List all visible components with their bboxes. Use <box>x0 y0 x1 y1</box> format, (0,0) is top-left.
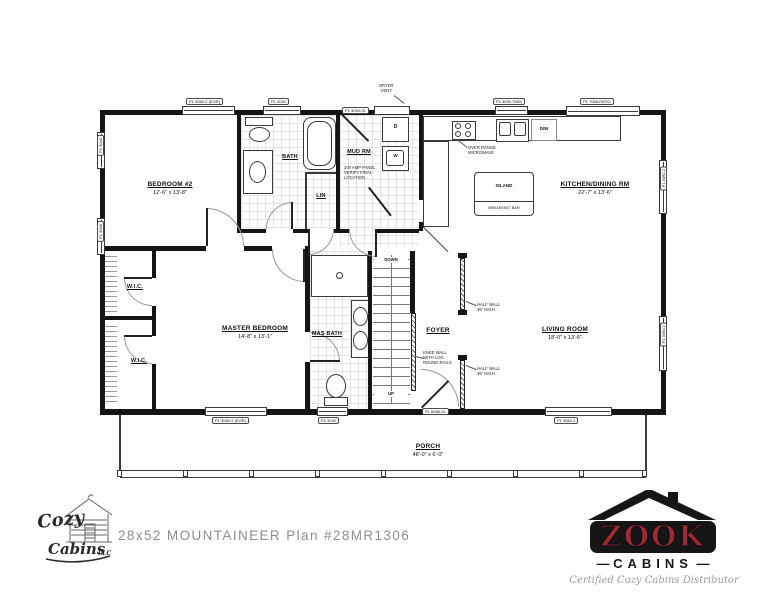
mudroom-door <box>374 106 410 115</box>
vanity-sink <box>353 331 368 350</box>
breakfast-bar-label: BREAKFAST BAR <box>474 205 534 211</box>
window-spec: P1 3030 TWIN <box>493 98 525 105</box>
wall <box>100 316 152 320</box>
knee-wall <box>411 313 416 391</box>
wall <box>305 246 310 332</box>
door-leaf <box>124 277 152 279</box>
room-label-kitchen: KITCHEN/DINING RM <box>535 181 655 188</box>
leader-line <box>466 301 477 306</box>
toilet-bowl <box>326 374 346 398</box>
wall <box>368 251 372 409</box>
door-leaf <box>308 229 310 255</box>
window-spec: P1 3040 <box>97 135 104 156</box>
counter-corner-line <box>422 226 448 252</box>
door-leaf <box>206 208 208 246</box>
room-label-foyer: FOYER <box>416 327 460 334</box>
island-label: ISLAND <box>474 183 534 189</box>
kitchen-counter-left <box>423 141 449 227</box>
window <box>545 407 612 416</box>
door-leaf <box>310 360 340 362</box>
floorplan-sheet: ISLAND BREAKFAST BAR D/W D W DOWN UP <box>0 0 768 593</box>
porch-post <box>249 470 254 477</box>
cozy-word: Cozy <box>36 507 86 533</box>
linen-shelf <box>305 172 337 174</box>
panel-note: 200 AMP PANEL VERIFY FINAL LOCATION <box>344 165 376 180</box>
wall <box>152 251 156 278</box>
dryer-vent-note: DRYER VENT <box>379 83 394 93</box>
breakfast-bar-line <box>475 201 533 202</box>
room-label-porch: PORCH <box>368 443 488 450</box>
wall <box>237 115 241 231</box>
room-label-lin: LIN <box>306 193 336 199</box>
zook-wordmark: ZOOK <box>590 520 716 553</box>
burner <box>455 123 461 129</box>
door-leaf <box>303 249 305 282</box>
closet-hangers <box>104 252 117 314</box>
porch-post <box>447 470 452 477</box>
door-spec: P1 6068-SL <box>422 408 449 415</box>
dishwasher-label: D/W <box>531 126 557 132</box>
wall <box>152 364 156 409</box>
room-label-wic1: W.I.C. <box>113 284 157 290</box>
door-leaf <box>375 229 377 257</box>
burner <box>455 131 461 137</box>
porch-post <box>642 470 647 477</box>
half-wall-cap <box>458 310 467 315</box>
door-leaf <box>291 202 293 229</box>
patio-door <box>566 106 640 116</box>
room-dims-master: 14'-8" x 13'-1" <box>195 334 315 340</box>
room-label-bath: BATH <box>270 154 310 160</box>
wall <box>334 229 349 233</box>
window <box>205 407 267 416</box>
room-label-wic2: W.I.C. <box>117 358 161 364</box>
leader-line <box>394 95 405 104</box>
toilet-bowl <box>249 127 270 142</box>
wall <box>336 115 340 231</box>
room-dims-bedroom2: 12'-6" x 13'-8" <box>110 190 230 196</box>
window <box>182 106 235 115</box>
cozy-cabins-logo: Cozy Cabins LLC <box>36 492 116 570</box>
wall <box>410 251 415 313</box>
burner <box>465 123 471 129</box>
window <box>495 106 528 115</box>
wall <box>377 229 419 233</box>
washer-label: W <box>382 153 409 159</box>
window-spec: P1 3060-2 <box>554 417 578 424</box>
zook-roof-icon <box>586 486 718 522</box>
porch-right-edge <box>645 415 647 472</box>
zook-cabins-word: CABINS <box>586 556 720 571</box>
door-spec: P1 7068-PATIO <box>580 98 614 105</box>
linen-wall <box>305 172 307 231</box>
knee-wall-note: KNEE WALL WITH LOG ROUND RAILS <box>423 350 452 365</box>
room-label-masbath: MAS BATH <box>304 331 350 337</box>
bathtub-basin <box>307 121 332 166</box>
porch-post <box>315 470 320 477</box>
porch-post <box>117 470 122 477</box>
wall <box>419 222 423 231</box>
sink-basin <box>514 122 526 136</box>
stairs-up-label: UP <box>374 391 408 397</box>
door-leaf <box>124 335 152 337</box>
half-wall-lower <box>460 360 465 409</box>
window-spec: P1 3040 <box>268 98 289 105</box>
leader-line <box>466 365 477 370</box>
porch-post <box>183 470 188 477</box>
room-label-master: MASTER BEDROOM <box>195 325 315 332</box>
window-spec: P1 3060-2 <box>660 322 667 346</box>
vanity-sink <box>249 161 266 183</box>
room-label-bedroom2: BEDROOM #2 <box>110 181 230 188</box>
plan-title: 28x52 MOUNTAINEER Plan #28MR1306 <box>118 528 410 543</box>
burner <box>465 131 471 137</box>
porch-left-edge <box>119 415 121 472</box>
porch-post <box>579 470 584 477</box>
half-wall-note-upper: HALF WALL 36" HIGH <box>477 302 500 312</box>
window-spec: P1 3060-2 (EGR) <box>212 417 249 424</box>
window <box>317 407 348 416</box>
door-arc <box>272 249 305 282</box>
zook-tagline: Certified Cozy Cabins Distributor <box>556 575 752 586</box>
window-spec: P1 3060-2 <box>660 166 667 190</box>
room-label-living: LIVING ROOM <box>505 326 625 333</box>
wall <box>293 229 308 233</box>
dryer-label: D <box>382 124 409 130</box>
window-spec: P1 3060-2 (EGR) <box>186 98 223 105</box>
toilet-tank <box>324 397 348 406</box>
half-wall-note-lower: HALF WALL 36" HIGH <box>477 366 500 376</box>
microwave-note: OVER RANGE MICROWAVE <box>468 145 496 155</box>
room-label-mud: MUD RM <box>340 149 378 155</box>
toilet-tank <box>245 117 273 126</box>
room-dims-kitchen: 22'-7" x 13'-6" <box>535 190 655 196</box>
wall <box>152 306 156 336</box>
wall <box>419 115 423 200</box>
stairs-down-label: DOWN <box>374 257 408 263</box>
sink-basin <box>499 122 511 136</box>
room-dims-porch: 48'-0" x 6'-0" <box>368 452 488 458</box>
porch-post <box>381 470 386 477</box>
shower-drain <box>336 272 343 279</box>
wall <box>244 246 272 251</box>
door-arc <box>124 278 152 306</box>
room-dims-living: 18'-0" x 13'-6" <box>505 335 625 341</box>
window-spec: P1 3040 <box>97 221 104 242</box>
window <box>263 106 301 115</box>
vanity-sink <box>353 307 368 326</box>
wall <box>305 362 310 409</box>
closet-hangers <box>104 322 117 406</box>
stair-arrow-line <box>391 255 392 403</box>
window-spec: P1 3040 <box>318 417 339 424</box>
porch-post <box>513 470 518 477</box>
half-wall-upper <box>460 258 465 310</box>
door-spec: P1 3050-SL <box>342 107 369 114</box>
